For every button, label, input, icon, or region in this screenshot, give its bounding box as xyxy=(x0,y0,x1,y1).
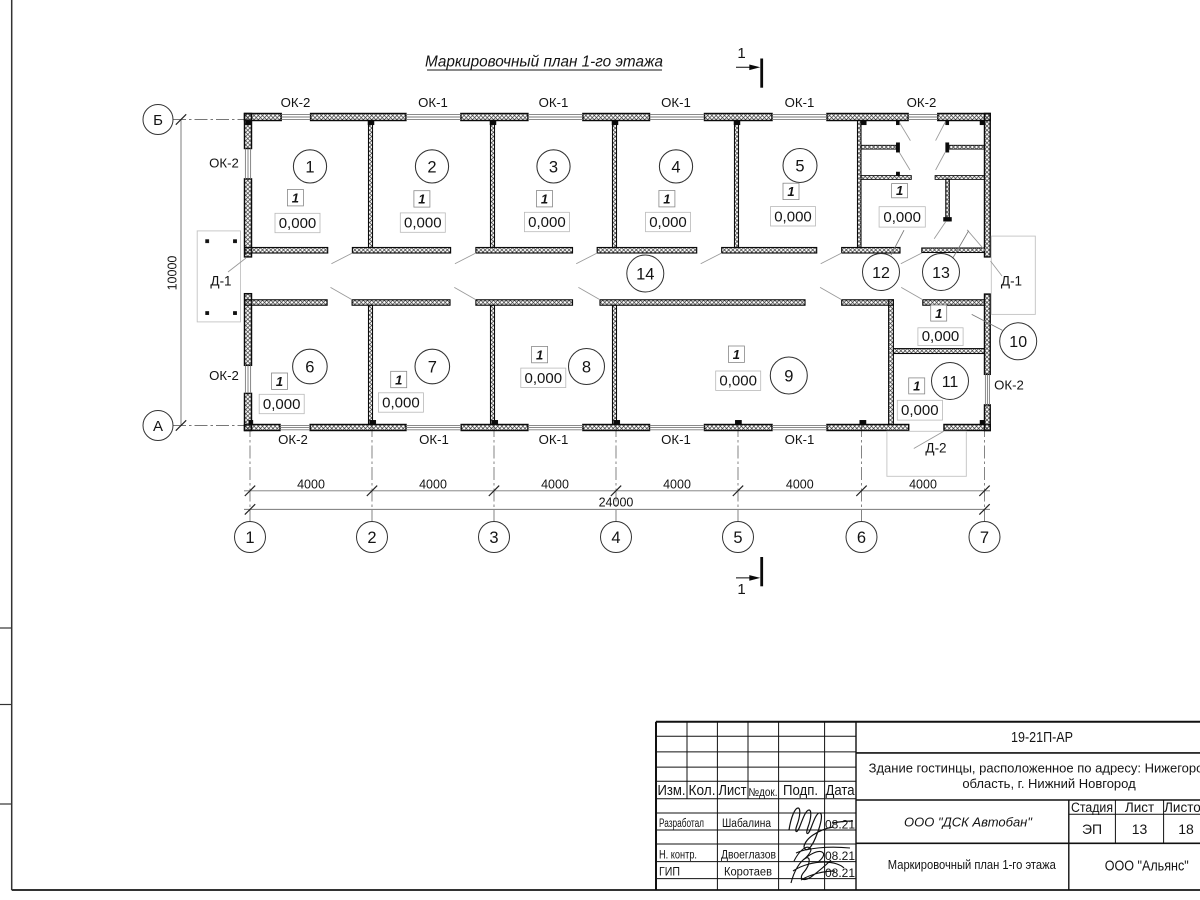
svg-text:4000: 4000 xyxy=(419,477,447,491)
svg-text:4000: 4000 xyxy=(663,477,691,491)
svg-text:08.21: 08.21 xyxy=(825,818,855,832)
svg-text:3: 3 xyxy=(549,158,558,176)
svg-text:4000: 4000 xyxy=(909,477,937,491)
svg-text:0,000: 0,000 xyxy=(263,396,301,413)
svg-text:ОК-1: ОК-1 xyxy=(419,432,449,447)
svg-text:6: 6 xyxy=(305,359,314,377)
svg-text:ОК-2: ОК-2 xyxy=(281,95,311,110)
svg-text:ООО "Альянс": ООО "Альянс" xyxy=(1105,858,1189,875)
svg-text:1: 1 xyxy=(418,192,425,207)
svg-text:4: 4 xyxy=(671,158,680,176)
svg-text:08.21: 08.21 xyxy=(825,866,855,880)
svg-text:8: 8 xyxy=(582,359,591,377)
svg-text:1: 1 xyxy=(395,372,402,387)
svg-text:область, г. Нижний Новгород: область, г. Нижний Новгород xyxy=(962,776,1136,791)
svg-text:Кол.: Кол. xyxy=(689,783,716,799)
svg-text:ОК-1: ОК-1 xyxy=(785,95,815,110)
svg-text:10: 10 xyxy=(1009,334,1027,351)
svg-text:3: 3 xyxy=(489,529,498,547)
svg-text:0,000: 0,000 xyxy=(649,214,687,231)
svg-text:ОК-1: ОК-1 xyxy=(785,432,815,447)
svg-text:13: 13 xyxy=(932,265,950,282)
svg-text:Разработал: Разработал xyxy=(659,818,704,830)
svg-text:0,000: 0,000 xyxy=(719,373,757,390)
svg-text:ООО "ДСК Автобан": ООО "ДСК Автобан" xyxy=(904,815,1033,830)
svg-text:№док.: №док. xyxy=(749,787,778,799)
svg-text:4: 4 xyxy=(611,529,620,547)
svg-text:Д-1: Д-1 xyxy=(1001,273,1022,288)
svg-text:ОК-2: ОК-2 xyxy=(994,378,1024,393)
svg-text:Двоеглазов: Двоеглазов xyxy=(721,850,776,862)
svg-text:1: 1 xyxy=(292,191,299,206)
svg-text:1: 1 xyxy=(663,192,670,207)
svg-text:12: 12 xyxy=(872,265,890,282)
svg-text:4000: 4000 xyxy=(297,477,325,491)
svg-text:6: 6 xyxy=(857,529,866,547)
svg-text:ОК-1: ОК-1 xyxy=(661,95,691,110)
svg-text:0,000: 0,000 xyxy=(922,328,960,345)
svg-text:9: 9 xyxy=(784,368,793,386)
svg-text:Подп.: Подп. xyxy=(783,783,818,799)
svg-text:1: 1 xyxy=(541,192,548,207)
svg-text:1: 1 xyxy=(536,347,543,362)
svg-text:Лист: Лист xyxy=(719,783,747,799)
svg-text:ОК-2: ОК-2 xyxy=(209,156,239,171)
svg-text:Маркировочный план 1-го этажа: Маркировочный план 1-го этажа xyxy=(425,54,663,71)
svg-text:5: 5 xyxy=(795,158,804,176)
svg-text:Листов: Листов xyxy=(1164,800,1200,815)
svg-text:ОК-2: ОК-2 xyxy=(278,432,308,447)
svg-text:5: 5 xyxy=(733,529,742,547)
svg-text:1: 1 xyxy=(787,184,794,199)
svg-text:ЭП: ЭП xyxy=(1082,821,1102,837)
svg-text:7: 7 xyxy=(428,359,437,377)
svg-text:1: 1 xyxy=(276,374,283,389)
svg-text:13: 13 xyxy=(1132,821,1148,837)
svg-text:Д-2: Д-2 xyxy=(925,441,946,456)
svg-text:0,000: 0,000 xyxy=(525,370,563,387)
svg-text:А: А xyxy=(153,418,163,435)
svg-text:1: 1 xyxy=(305,158,314,176)
svg-text:0,000: 0,000 xyxy=(528,214,566,231)
svg-text:1: 1 xyxy=(245,529,254,547)
svg-text:ОК-1: ОК-1 xyxy=(418,95,448,110)
svg-text:4000: 4000 xyxy=(786,477,814,491)
svg-text:Д-1: Д-1 xyxy=(210,274,231,289)
svg-text:1: 1 xyxy=(733,347,740,362)
svg-text:1: 1 xyxy=(935,306,942,321)
svg-text:11: 11 xyxy=(942,374,959,391)
svg-text:Здание гостинцы, расположенное: Здание гостинцы, расположенное по адресу… xyxy=(869,761,1200,776)
svg-text:1: 1 xyxy=(896,183,903,198)
svg-text:7: 7 xyxy=(980,529,989,547)
svg-text:0,000: 0,000 xyxy=(404,215,442,232)
svg-text:24000: 24000 xyxy=(599,495,634,509)
svg-text:Маркировочный план 1-го этажа: Маркировочный план 1-го этажа xyxy=(888,858,1056,872)
svg-text:Стадия: Стадия xyxy=(1071,800,1113,815)
svg-text:Н. контр.: Н. контр. xyxy=(659,850,697,862)
svg-text:0,000: 0,000 xyxy=(382,395,420,412)
svg-text:0,000: 0,000 xyxy=(774,208,812,225)
svg-text:14: 14 xyxy=(636,266,654,284)
svg-text:Б: Б xyxy=(153,112,163,129)
svg-text:19-21П-АР: 19-21П-АР xyxy=(1011,729,1073,746)
svg-text:1: 1 xyxy=(737,581,745,598)
svg-text:4000: 4000 xyxy=(541,477,569,491)
svg-text:Коротаев: Коротаев xyxy=(724,867,772,879)
svg-text:1: 1 xyxy=(913,379,920,394)
svg-text:ОК-2: ОК-2 xyxy=(209,368,239,383)
svg-text:Изм.: Изм. xyxy=(658,783,686,799)
svg-text:18: 18 xyxy=(1178,821,1194,837)
svg-text:ОК-1: ОК-1 xyxy=(661,432,691,447)
svg-text:ГИП: ГИП xyxy=(659,867,680,879)
svg-text:2: 2 xyxy=(427,158,436,176)
svg-text:Лист: Лист xyxy=(1125,800,1154,815)
svg-text:Дата: Дата xyxy=(826,783,856,799)
svg-text:ОК-2: ОК-2 xyxy=(907,95,937,110)
svg-text:0,000: 0,000 xyxy=(901,402,939,419)
svg-text:Шабалина: Шабалина xyxy=(722,818,772,830)
svg-text:2: 2 xyxy=(367,529,376,547)
svg-text:1: 1 xyxy=(737,45,745,62)
svg-text:0,000: 0,000 xyxy=(883,209,921,226)
svg-text:10000: 10000 xyxy=(166,256,180,291)
svg-text:0,000: 0,000 xyxy=(279,215,317,232)
svg-text:ОК-1: ОК-1 xyxy=(539,95,569,110)
svg-text:ОК-1: ОК-1 xyxy=(539,432,569,447)
